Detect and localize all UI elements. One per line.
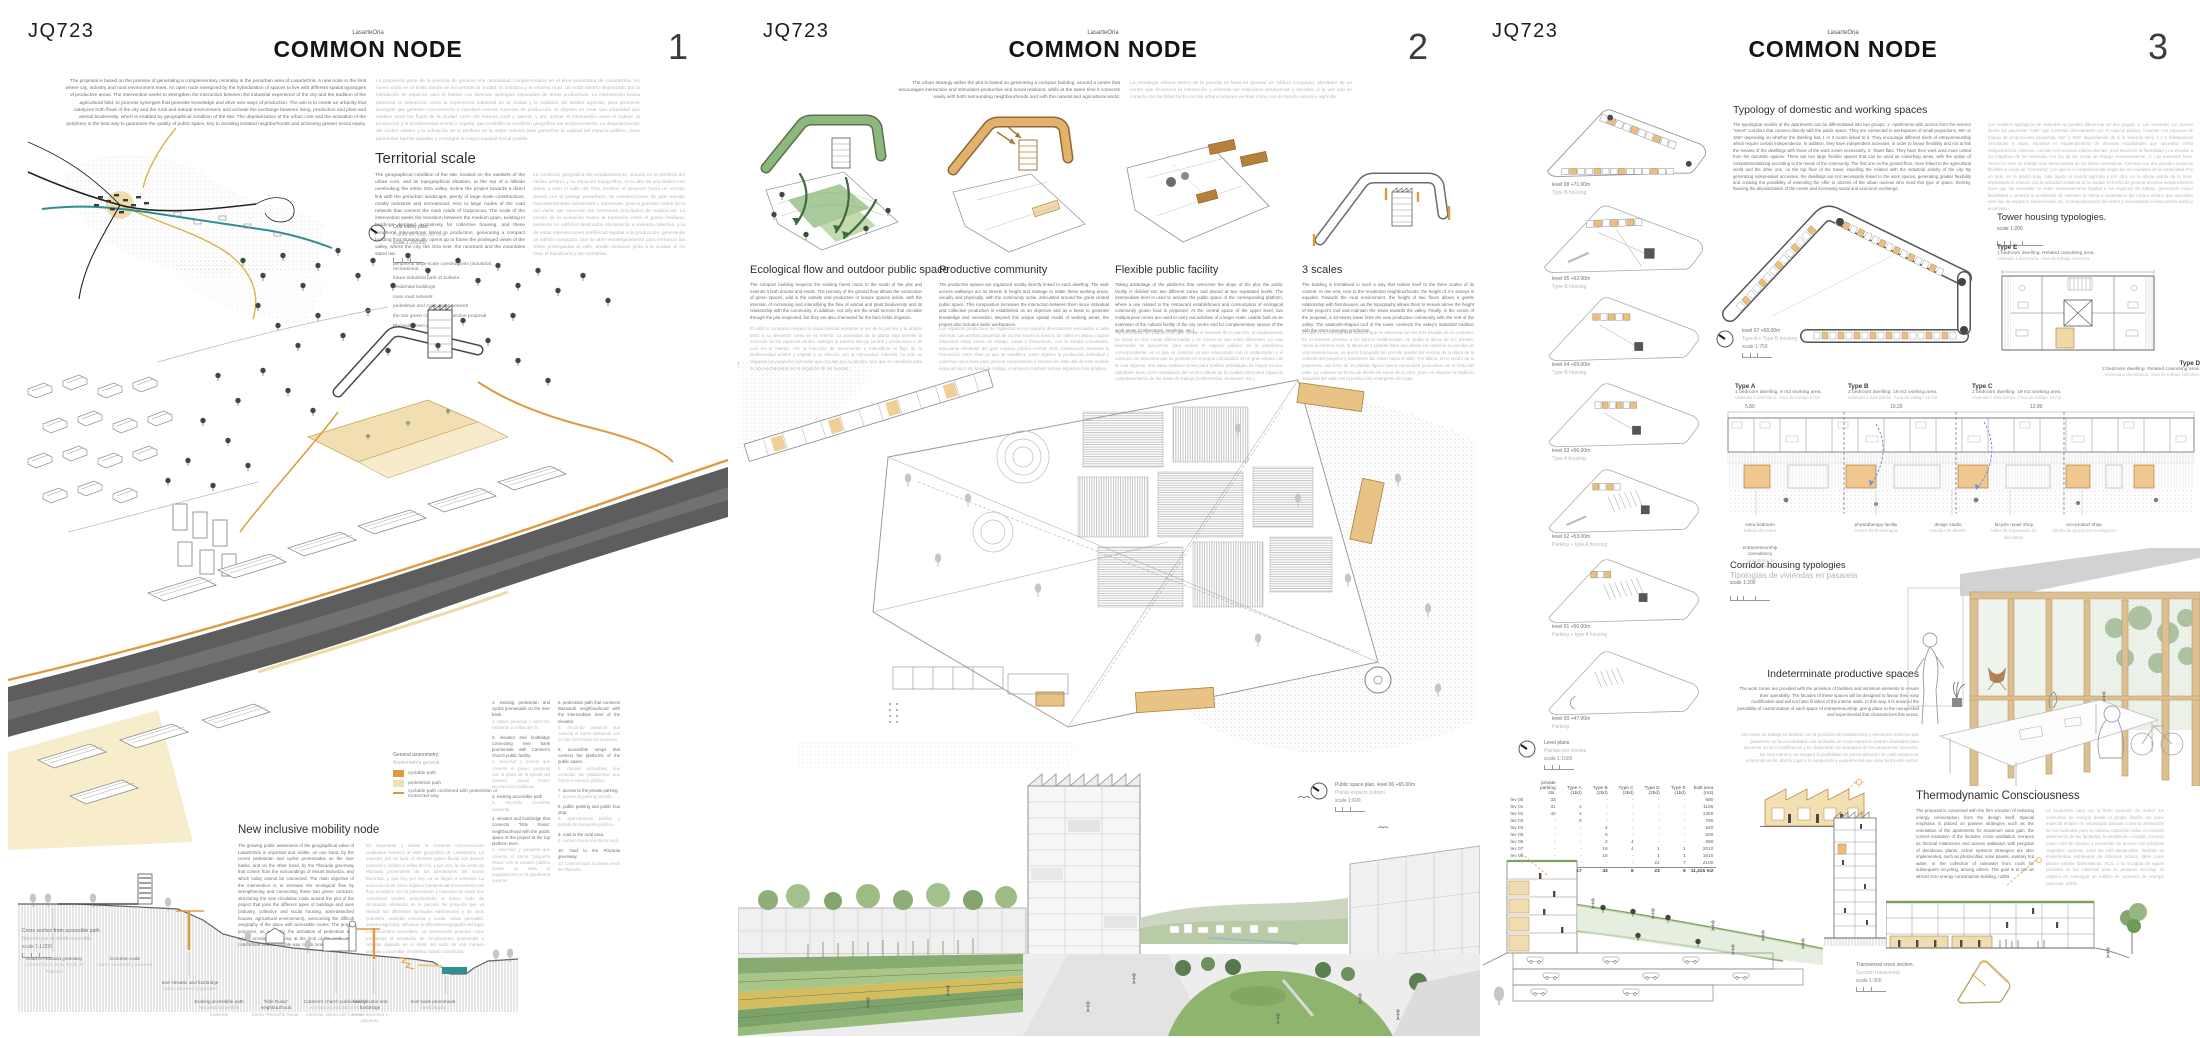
level-05-plan [1532,202,1717,276]
walkway-band [1728,452,2194,463]
suburban-houses [28,375,172,503]
section-key-plan [1952,956,2016,1006]
level-05-label: level 05 +62.00mType B housing [1552,276,1590,292]
tower-section-drawing [1824,810,1886,955]
table-header-row: private parking sts.Type A (1bd)Type B (… [1508,780,1716,797]
parked-cars [1527,957,1749,995]
panel-number: 1 [668,26,688,68]
diagram-3-scales [1300,140,1475,262]
combined-path-swatch [393,792,404,794]
intro-paragraph-es: La estrategia urbana dentro de la parcel… [1130,80,1352,102]
slope-tree [2120,903,2147,954]
carmen-church [323,921,356,951]
level-07-caption: level 07 +68.00mType A + Type B housings… [1742,328,1852,362]
section-label-little-rusia: "little Rusia" neighbourhoodbarrio "Pequ… [248,999,304,1018]
table-header-cell: Type A (1bd) [1558,780,1584,797]
ceiling-slab [1960,548,2200,596]
tower-typologies-title: Tower housing typologies. [1997,212,2106,223]
section-label-accessible-path: Existing accessible pathRecorrido accesi… [190,999,248,1018]
striped-tower [138,874,152,904]
panel-number: 2 [1408,26,1428,68]
entry-code: JQ723 [763,20,829,43]
river-water [442,967,467,974]
diagram4-text-en: The building is formalised in such a way… [1302,282,1474,335]
annotation: 1. existing pedestrian and cyclist prome… [492,700,550,731]
section-label-elevator2: new elevator and footbridgenuevo ascenso… [344,999,396,1025]
diagram1-text-en: The compact building respects the existi… [750,282,922,322]
parking-dots [889,703,898,723]
table-header-cell: built area (m2) [1688,780,1716,797]
intro-paragraph-en: The urban strategy within the plot is ba… [895,80,1120,102]
workspace-interior-render [1900,548,2200,786]
type-a-label: Type A1 bedroom dwelling. 9 m2 working a… [1735,383,1843,400]
green-terraces [1577,905,1823,965]
table-row: lev 02404----1350 [1508,811,1716,818]
level-08-label: level 08 +71.00mType B housing [1552,182,1590,198]
diagram3-text-en: Taking advantage of the platforms that o… [1115,282,1283,335]
typology-heading: Typology of domestic and working spaces [1733,104,1927,116]
typology-text-en: The typological models of the apartments… [1733,122,1971,193]
axon-annotations-col1: 1. existing pedestrian and cyclist prome… [492,700,550,888]
label-design-studio: design studioestudio de diseño [1920,522,1976,535]
entry-code: JQ723 [1492,20,1558,43]
cyclable-path-swatch [393,770,404,777]
north-arrow-icon [1518,740,1536,758]
level-03-label: level 03 +56.00mType A housing [1552,448,1590,464]
type-b-label: Type B2 bedroom dwelling. 19 m2 working … [1848,383,1966,400]
section-label-promenade: river bank promenadepaseo fluvial [408,999,458,1012]
corridor-typologies-caption: Corridor housing typologies Tipologías d… [1730,560,1857,606]
table-row: lev 01314----1155 [1508,804,1716,811]
table-header-cell: private parking sts. [1532,780,1558,797]
standing-person [1914,633,1944,724]
panel-title: COMMON NODE [1713,36,1973,63]
axon-annotations-col2: 5. pedestrian path that connects Basaund… [558,700,620,876]
render-tower [1028,774,1140,984]
panel-title: COMMON NODE [973,36,1233,63]
label-physiotherapy: physiotherapy facilitycentro de fisioter… [1846,522,1906,535]
level-01-plan [1532,556,1717,626]
diagram3-heading: Flexible public facility [1115,264,1218,276]
entry-code: JQ723 [28,20,94,43]
intro-paragraph-es: La propuesta parte de la premisa de gene… [376,78,640,143]
longitudinal-section-drawing [1483,853,1833,1005]
table-row: lev 05--5---500 [1508,832,1716,839]
annotation: 10. road to the Plazaola greenway.10. ca… [558,848,620,873]
table-row: lev 06--24--680 [1508,839,1716,846]
public-space-plan-drawing [738,362,1480,770]
render-slab-building [738,883,1026,954]
pedestrian-path-swatch [393,780,404,787]
planting-band [1728,490,2194,514]
level-02-plan [1532,466,1717,536]
general-axonometry-drawing [8,232,728,850]
corridor-housing-plan [1726,410,2196,518]
level-01-label: level 01 +50.00mParking + type A housing [1552,624,1607,640]
table-header-cell: Type C (2bd) [1610,780,1636,797]
annotation: 8. public parking and public bus stop.8.… [558,804,620,829]
tower-plan-drawing [1998,270,2158,358]
competition-board: JQ723 LasarteOria COMMON NODE 1 The prop… [0,0,2200,1038]
highlighted-room [2056,328,2074,348]
typology-text-es: Los modelos tipológicos de viviendas se … [1988,122,2193,212]
thermo-heading: Thermodynamic Consciousness [1916,790,2080,802]
roof-trees [758,883,1017,910]
level-02-label: level 02 +53.00mParking + type A housing [1552,534,1607,550]
little-rusia-house [266,928,284,943]
annotation: 7. access to the private parking.7. acce… [558,788,620,800]
level-plans-caption: Level plansPlantas por nivelesscale 1:15… [1544,740,1634,774]
project-tower [428,305,452,358]
level-00-plan [1532,648,1717,718]
annotation: 6. accessible ramps that connect the pla… [558,747,620,784]
type-c-label: Type C2 bedroom dwelling. 19 m2 working … [1972,383,2090,400]
level-03-plan [1532,380,1717,450]
diagram2-heading: Productive community [939,264,1047,276]
annotation: 5. pedestrian path that connects Basaund… [558,700,620,744]
north-arrow-icon [1716,330,1734,348]
territorial-scale-heading: Territorial scale [375,150,476,167]
map-caption-en: Oria valley plan. [393,224,429,230]
mobility-node-heading: New inclusive mobility node [238,824,379,836]
level-04-label: level 04 +59.00mType B housing [1552,362,1590,378]
type-d-label: Type D 2 bedroom dwelling. Related cowor… [2040,360,2200,377]
table-header-cell: Type E (1bd) [1662,780,1688,797]
type-e-label: Type E 1 bedroom dwelling. Related cowor… [1997,244,2167,261]
annotation: 2. elevator and footbridge connecting ri… [492,735,550,791]
section-label-elevator1: new elevator and footbridgenuevo ascenso… [158,980,222,993]
diagram4-heading: 3 scales [1302,264,1342,276]
birds [1298,797,1388,829]
annotation: 9. road to the rural area.9. camino haci… [558,832,620,844]
label-eco-shop: eco-product shoptienda de productos ecol… [2052,522,2116,535]
diagram-ecological-flow [748,104,926,262]
public-space-render [738,768,1480,1036]
panel-title: COMMON NODE [238,36,498,63]
transversal-caption: Transversal cross section.Sección transv… [1856,962,1942,996]
table-header-cell [1508,780,1532,797]
river-band [8,467,728,737]
table-row: lev 03-9----790 [1508,818,1716,825]
indeterminate-text-es: Las zonas de trabajo se facilitan con la… [1737,732,1919,765]
panel-number: 3 [2148,26,2168,68]
level-04-plan [1532,294,1717,364]
section-caption: Cross section from accessible path.Secci… [22,928,112,962]
table-row: lev 0033-----680 [1508,797,1716,804]
left-building [1507,861,1577,953]
diagram1-heading: Ecological flow and outdoor public space [750,264,949,276]
level-00-label: level 00 +47.00mParking [1552,716,1590,732]
bicycle [2131,726,2183,755]
level-08-plan [1540,106,1715,180]
roundabout [1365,667,1391,693]
diagram-productive-community [937,108,1112,262]
indeterminate-heading: Indeterminate productive spaces [1737,668,1919,680]
indeterminate-text-en: The work zones are provided with the pro… [1737,686,1919,719]
table-header-cell: Type B (2bd) [1584,780,1610,797]
table-row: lev 07--164112010 [1508,846,1716,853]
diagram2-text-en: The productive spaces are organized most… [939,282,1109,328]
table-header-cell: Type D (2bd) [1636,780,1662,797]
annotation: 3. existing accessible path3. recorrido … [492,794,550,813]
label-extra-bedroom: extra bedroomhabitación extra [1732,522,1788,535]
diagram-flexible-facility [1113,120,1283,262]
label-bicycle-shop: bicycle repair shoptaller de reparación … [1982,522,2046,541]
wing-section-drawing [1886,856,2171,958]
apartment-blocks [173,504,236,576]
table-row: lev 04--4---540 [1508,825,1716,832]
